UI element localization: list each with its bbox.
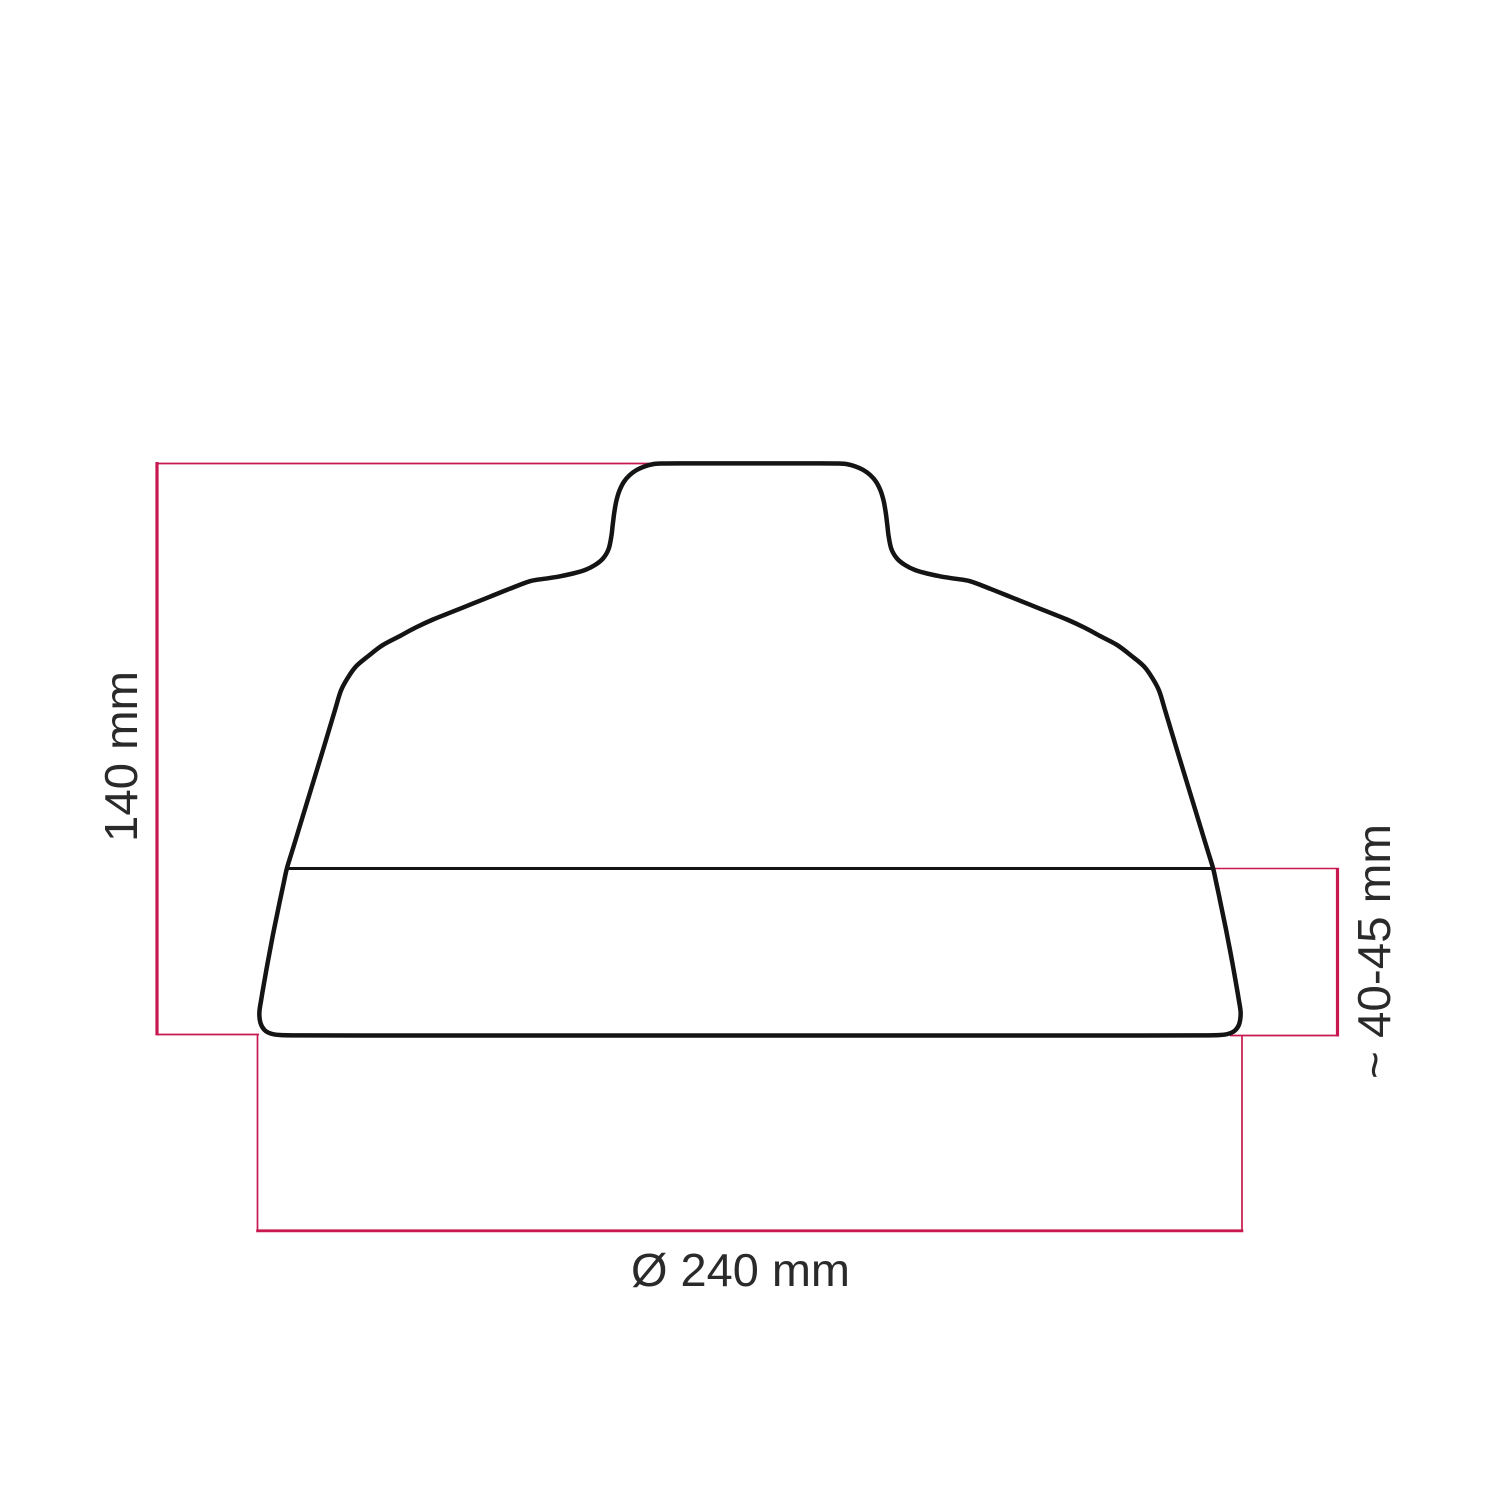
svg-text:140 mm: 140 mm — [95, 671, 147, 842]
svg-text:Ø 240 mm: Ø 240 mm — [631, 1244, 850, 1296]
svg-text:~ 40-45 mm: ~ 40-45 mm — [1348, 824, 1400, 1079]
